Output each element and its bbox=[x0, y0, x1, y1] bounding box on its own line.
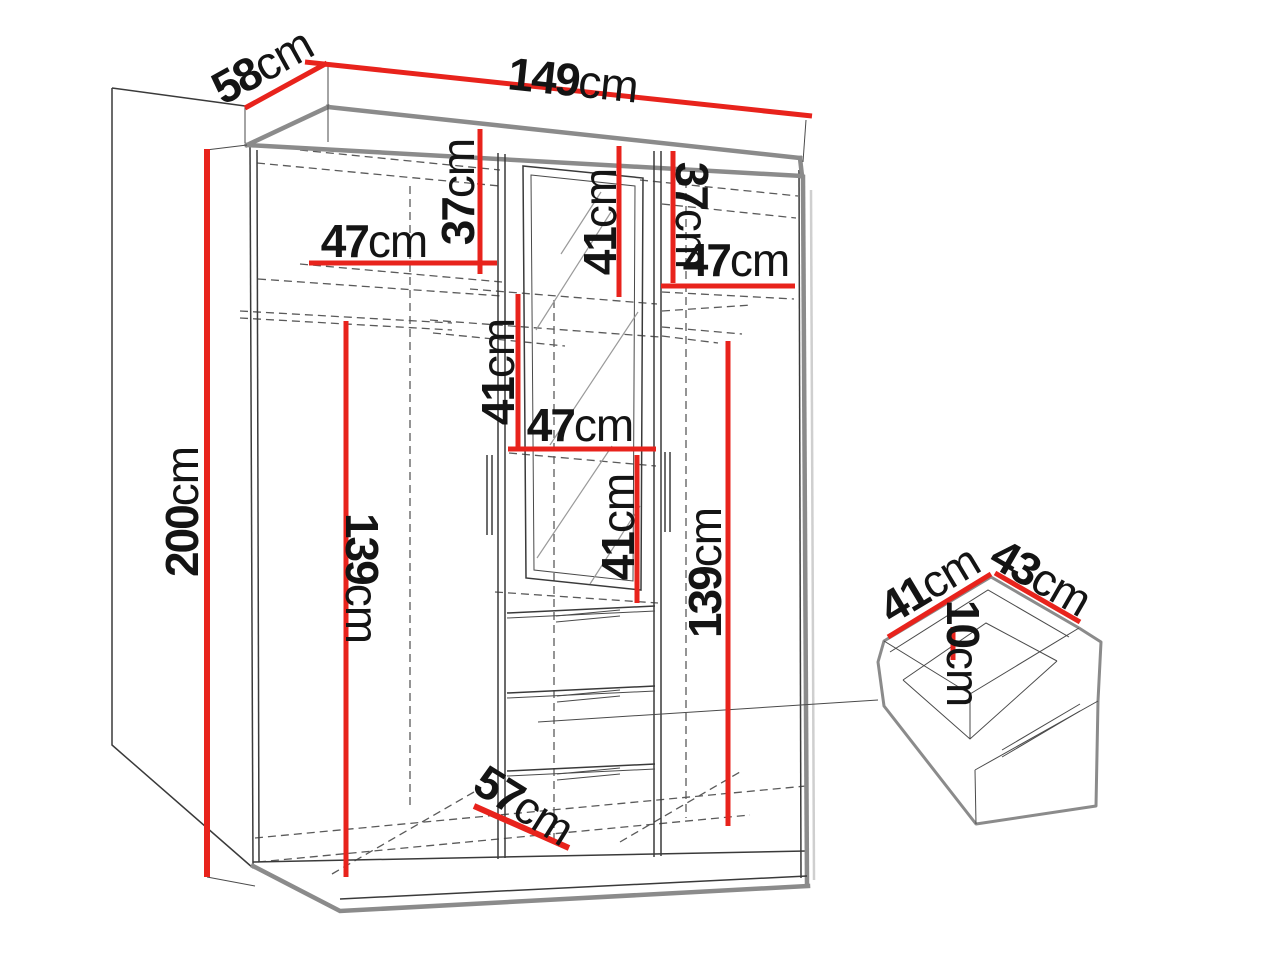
dimension-right-hanging-space: 139cm bbox=[682, 508, 728, 638]
dimension-drawer-height: 10cm bbox=[940, 600, 986, 707]
dimension-center-lower-section: 41cm bbox=[595, 474, 641, 581]
dimension-height: 200cm bbox=[159, 447, 205, 577]
dimension-center-top-section: 41cm bbox=[577, 169, 623, 276]
right-front-edge bbox=[803, 177, 807, 884]
wardrobe-dimension-diagram: 58cm 149cm 200cm 37cm 47cm 41cm 37cm 47c… bbox=[0, 0, 1280, 960]
dimension-left-top-section: 37cm bbox=[435, 139, 481, 246]
dimension-left-hanging-space: 139cm bbox=[339, 513, 385, 643]
top-back-edge bbox=[328, 107, 800, 158]
top-left-depth-edge bbox=[247, 107, 328, 145]
dimension-top-width: 149cm bbox=[506, 50, 640, 109]
dimension-center-mid-section: 41cm bbox=[475, 319, 521, 426]
drawer-leader-line bbox=[538, 700, 878, 722]
dimension-left-shelf-width: 47cm bbox=[321, 218, 428, 264]
wardrobe-drawer-fronts bbox=[507, 606, 655, 780]
plinth-edge bbox=[253, 866, 808, 911]
dimension-right-shelf-width: 47cm bbox=[683, 237, 790, 283]
dimension-center-shelf-width: 47cm bbox=[527, 402, 634, 448]
